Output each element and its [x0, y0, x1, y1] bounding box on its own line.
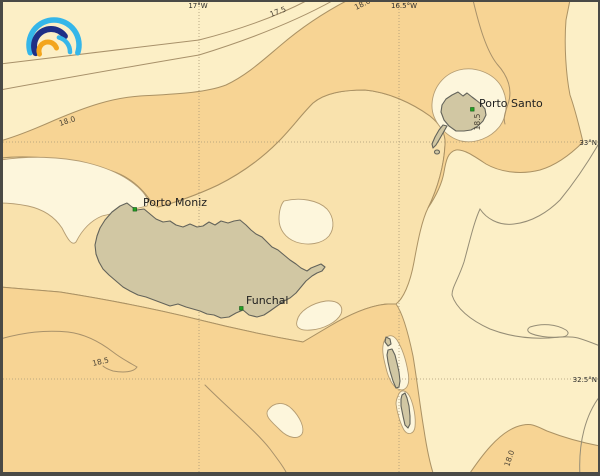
place-marker-porto-santo [471, 108, 475, 112]
contour-label-18-5-porto-santo: 18.5 [473, 113, 482, 130]
place-label-porto-santo: Porto Santo [479, 97, 543, 110]
place-marker-funchal [240, 307, 244, 311]
place-marker-porto-moniz [133, 208, 137, 212]
grid-label-17w: 17°W [188, 2, 207, 10]
frame-top [0, 0, 600, 2]
frame-left [0, 0, 3, 476]
contour-map-svg: 17°W 16.5°W 33°N 32.5°N 17.5 18.0 18.0 1… [0, 0, 600, 476]
frame-bottom [0, 472, 600, 476]
grid-label-16-5w: 16.5°W [391, 2, 417, 10]
islet-porto-santo [435, 150, 440, 154]
grid-label-32-5n: 32.5°N [573, 376, 597, 384]
place-label-porto-moniz: Porto Moniz [143, 196, 207, 209]
grid-label-33n: 33°N [579, 139, 597, 147]
map-canvas: 17°W 16.5°W 33°N 32.5°N 17.5 18.0 18.0 1… [0, 0, 600, 476]
place-label-funchal: Funchal [246, 294, 289, 307]
